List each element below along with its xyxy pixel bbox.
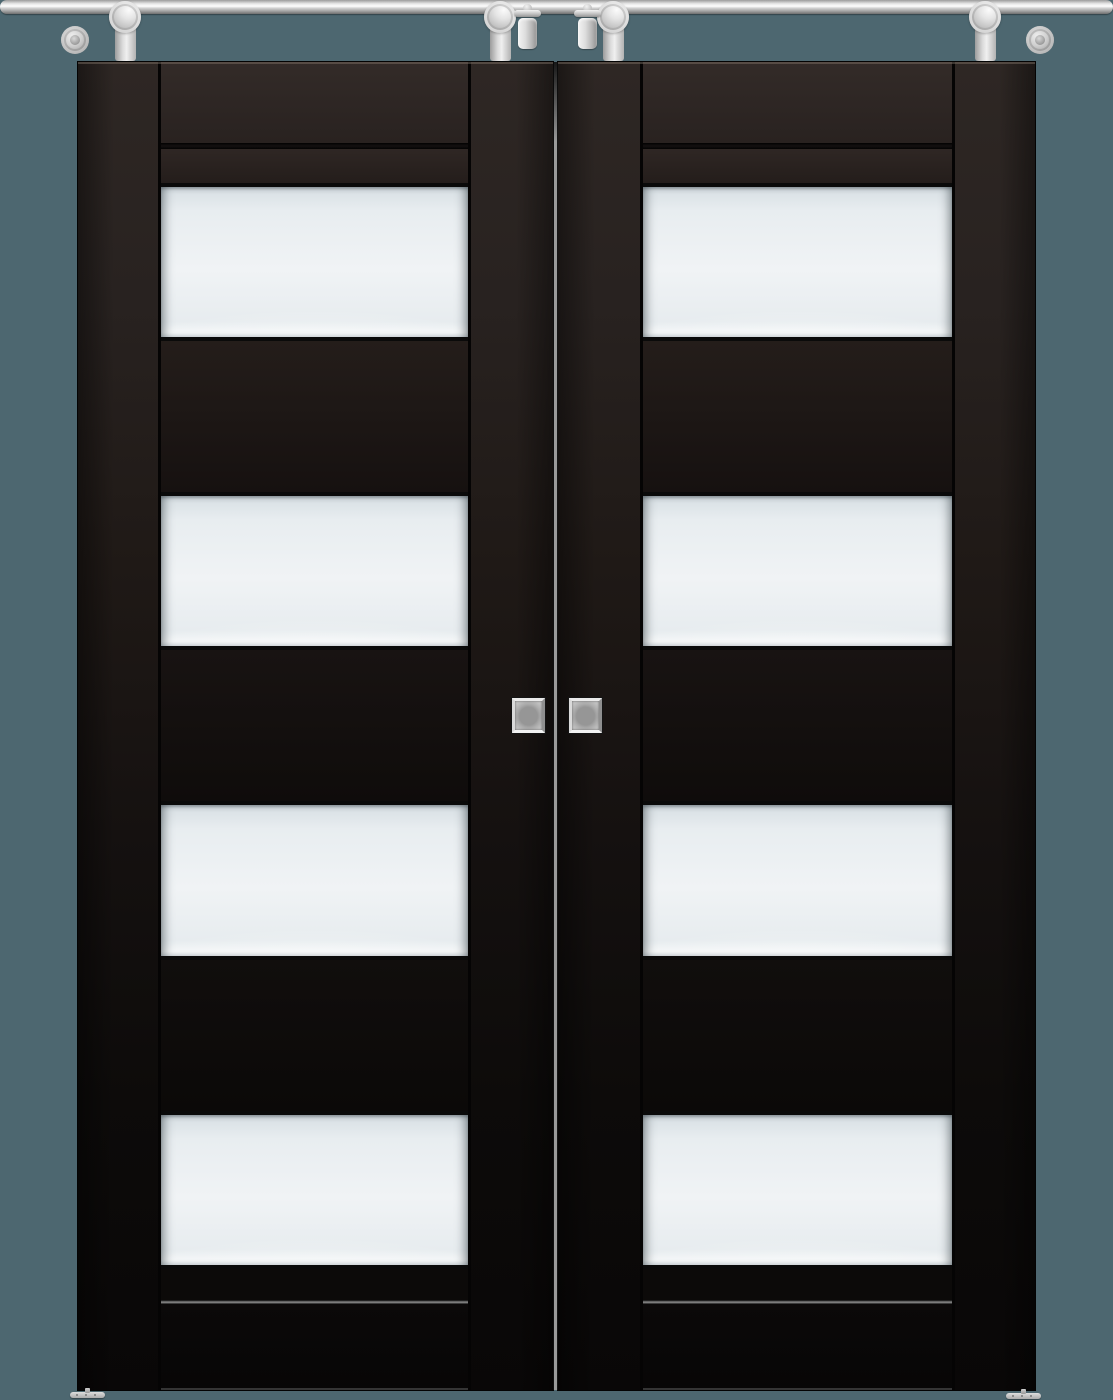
- stopper-body-icon: [518, 18, 537, 49]
- frosted-glass-panel-1: [643, 183, 952, 341]
- left-door-outer-stile: [78, 62, 158, 1390]
- left-door: [78, 62, 553, 1390]
- rail-wall-mount-left-icon: [61, 26, 89, 54]
- stopper-cap-icon: [574, 10, 601, 17]
- frosted-glass-panel-3: [161, 801, 468, 960]
- cross-rail-1: [643, 341, 952, 492]
- hanger-roller-4-icon: [969, 1, 1001, 33]
- top-rail-panel: [643, 62, 952, 143]
- right-door-panel-column: [643, 62, 952, 1390]
- right-door-outer-stile: [955, 62, 1035, 1390]
- stopper-body-icon: [578, 18, 597, 49]
- lock-rail: [643, 650, 952, 801]
- lock-rail: [161, 650, 468, 801]
- hanger-roller-3-icon: [597, 1, 629, 33]
- product-image: [0, 0, 1113, 1400]
- bottom-rail-panel: [161, 1304, 468, 1390]
- cross-rail-1: [161, 341, 468, 492]
- floor-guide-right-icon: [1006, 1393, 1041, 1399]
- frosted-glass-panel-2: [161, 492, 468, 650]
- left-door-panel-column: [161, 62, 468, 1390]
- rail-stopper-right-icon: [578, 4, 597, 50]
- cross-rail-4: [643, 1269, 952, 1300]
- rail-stopper-left-icon: [518, 4, 537, 50]
- hanger-roller-1-icon: [109, 1, 141, 33]
- cross-rail-3: [643, 960, 952, 1111]
- left-door-flush-pull-handle: [512, 698, 545, 733]
- top-rail-panel: [161, 62, 468, 143]
- right-door-flush-pull-handle: [569, 698, 602, 733]
- frosted-glass-panel-4: [643, 1111, 952, 1269]
- upper-strip: [161, 149, 468, 183]
- stopper-cap-icon: [514, 10, 541, 17]
- hanger-roller-2-icon: [484, 1, 516, 33]
- floor-guide-left-icon: [70, 1392, 105, 1398]
- cross-rail-4: [161, 1269, 468, 1300]
- frosted-glass-panel-3: [643, 801, 952, 960]
- barn-door-rail: [0, 0, 1113, 14]
- door-meeting-gap: [553, 62, 558, 1390]
- upper-strip: [643, 149, 952, 183]
- bottom-rail-panel: [643, 1304, 952, 1390]
- frosted-glass-panel-1: [161, 183, 468, 341]
- frosted-glass-panel-4: [161, 1111, 468, 1269]
- right-door: [558, 62, 1035, 1390]
- cross-rail-3: [161, 960, 468, 1111]
- frosted-glass-panel-2: [643, 492, 952, 650]
- rail-wall-mount-right-icon: [1026, 26, 1054, 54]
